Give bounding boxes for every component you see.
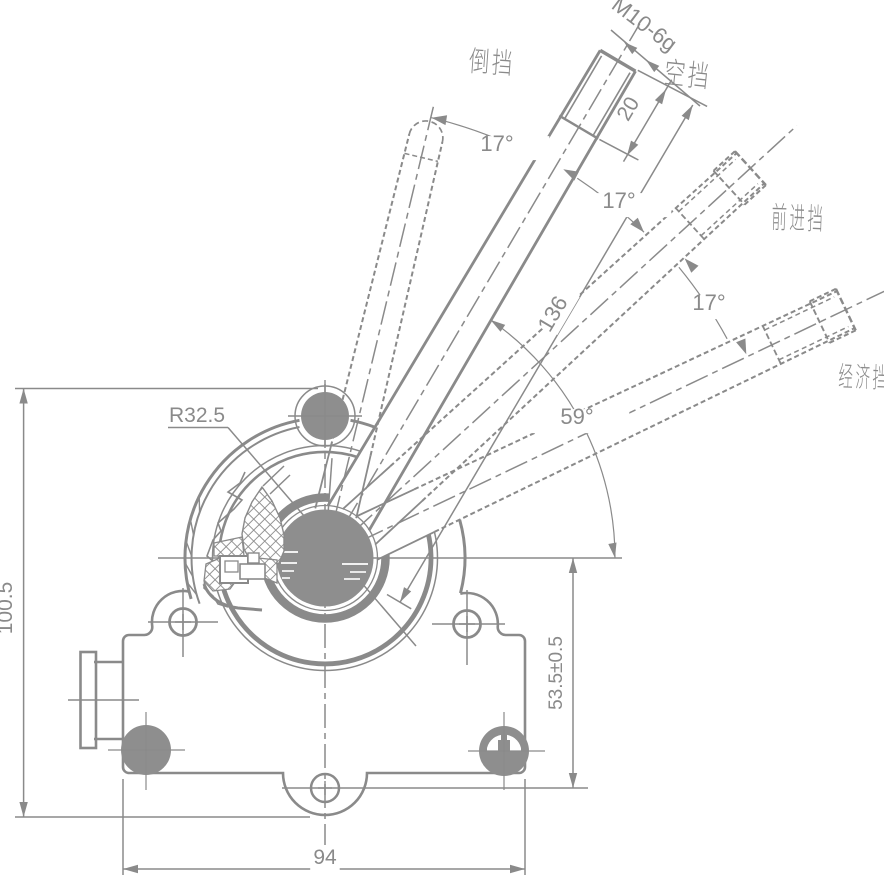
svg-text:100.5: 100.5 — [0, 582, 17, 635]
svg-text:17°: 17° — [692, 290, 725, 315]
svg-text:53.5±0.5: 53.5±0.5 — [546, 636, 567, 710]
svg-text:R32.5: R32.5 — [169, 404, 225, 427]
svg-text:59°: 59° — [560, 404, 593, 429]
svg-text:94: 94 — [313, 846, 337, 869]
svg-text:17°: 17° — [480, 131, 513, 156]
svg-text:17°: 17° — [602, 188, 635, 213]
